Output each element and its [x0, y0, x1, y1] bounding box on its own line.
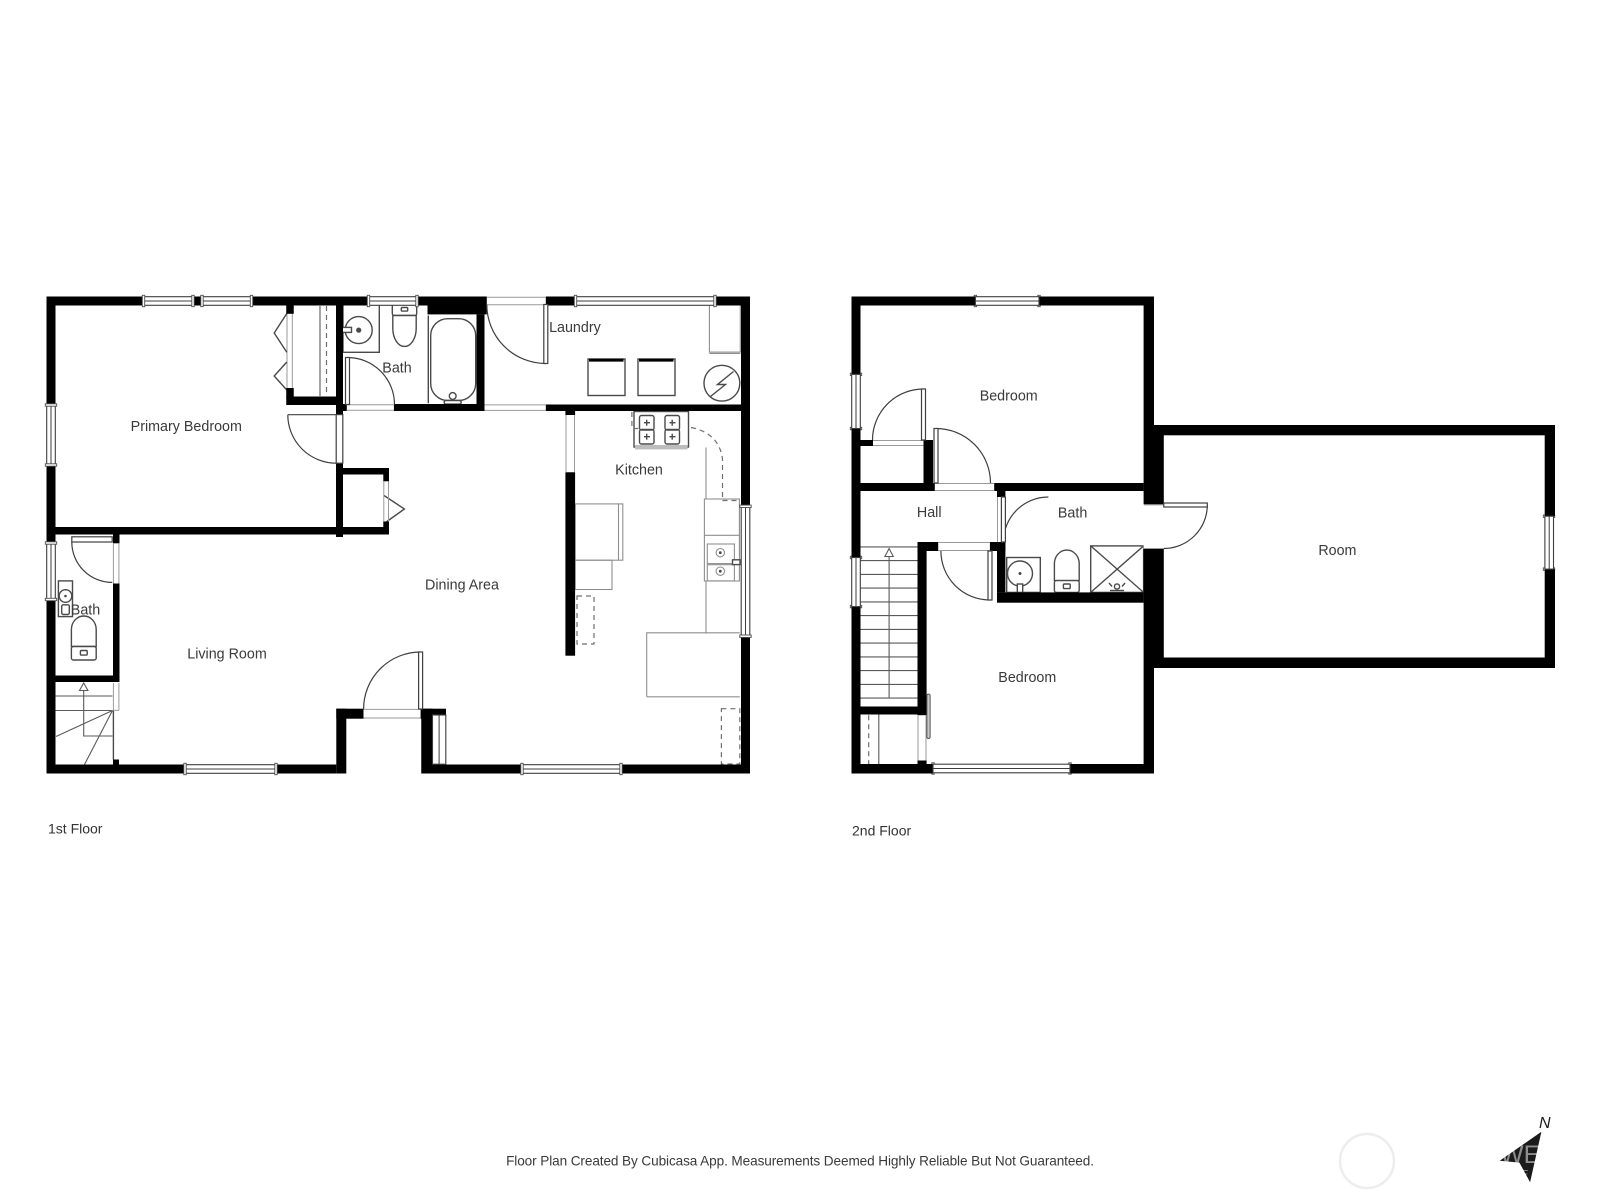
svg-text:Hall: Hall [917, 505, 942, 521]
svg-text:Bath: Bath [71, 603, 100, 619]
svg-text:Room: Room [1318, 543, 1356, 559]
svg-text:Bath: Bath [382, 361, 411, 377]
svg-text:Primary Bedroom: Primary Bedroom [131, 419, 242, 435]
svg-text:Laundry: Laundry [549, 320, 602, 336]
svg-text:Dining Area: Dining Area [425, 578, 499, 594]
svg-text:Floor Plan Created By Cubicasa: Floor Plan Created By Cubicasa App. Meas… [506, 1154, 1094, 1169]
svg-text:N: N [1539, 1115, 1551, 1132]
svg-text:1st Floor: 1st Floor [48, 821, 103, 837]
svg-text:Bath: Bath [1058, 505, 1087, 521]
svg-text:Bedroom: Bedroom [998, 670, 1056, 686]
svg-text:WE: WE [1500, 1141, 1540, 1169]
svg-text:E: E [1521, 1168, 1529, 1182]
svg-text:2nd Floor: 2nd Floor [852, 823, 911, 839]
svg-text:Bedroom: Bedroom [980, 388, 1038, 404]
svg-text:Living Room: Living Room [187, 647, 266, 663]
svg-text:Kitchen: Kitchen [615, 463, 663, 479]
